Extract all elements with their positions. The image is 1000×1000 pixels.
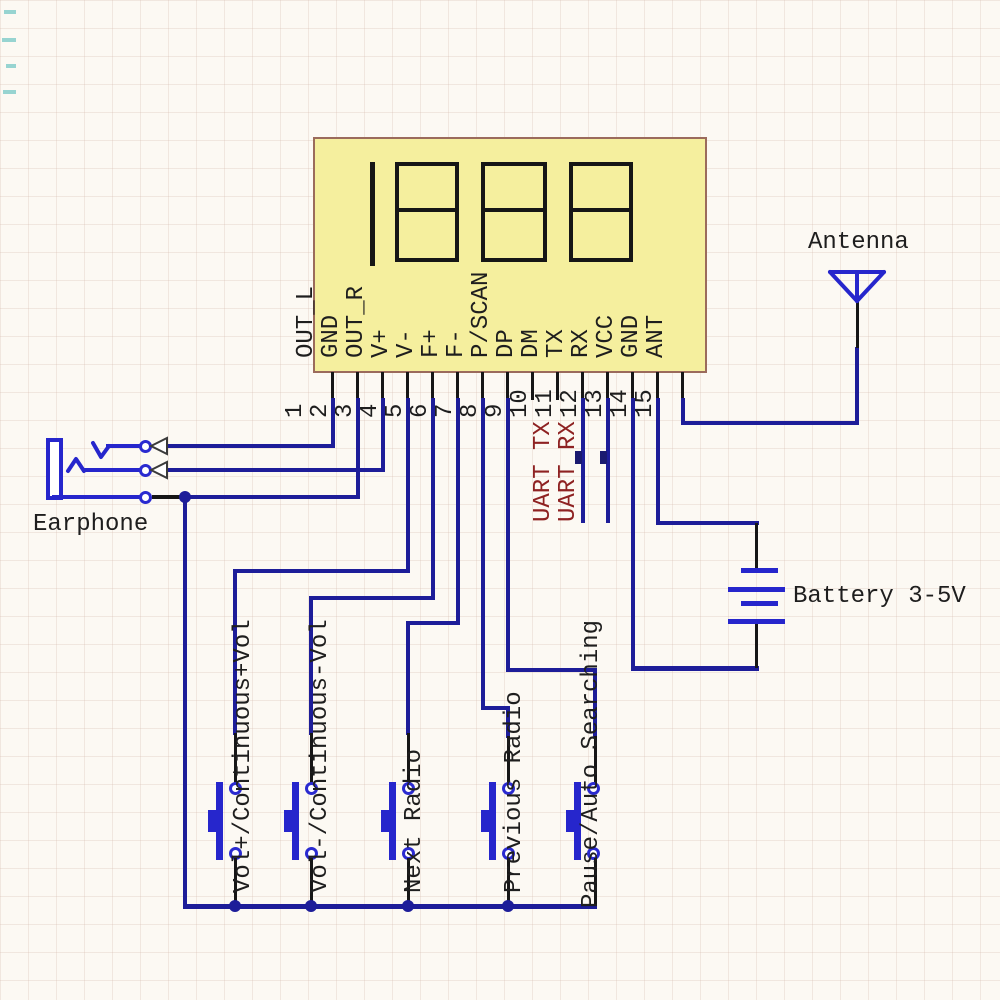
signal-arrow-icon	[151, 438, 167, 454]
signal-arrow-icon	[151, 462, 167, 478]
earphone-ring-spring-bend	[68, 459, 84, 471]
antenna-icon	[830, 272, 884, 301]
schematic-shapes	[0, 0, 1000, 1000]
earphone-tip-spring-bend	[93, 443, 109, 457]
schematic-canvas: OUT_L GND OUT_R V+ V- F+ F- P/SCAN DP DM…	[0, 0, 1000, 1000]
